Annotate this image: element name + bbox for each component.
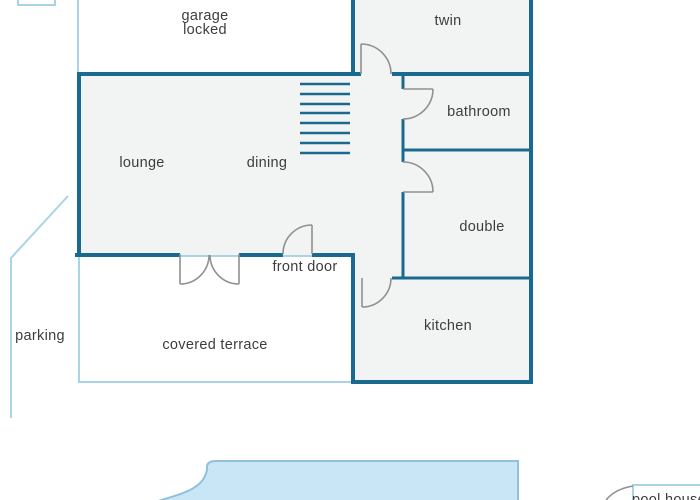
floor-plan-canvas: pool house — [0, 0, 700, 500]
pool — [158, 461, 518, 500]
label-kitchen: kitchen — [424, 318, 472, 334]
label-garage-line2: locked — [183, 22, 227, 38]
pool-house-door-arc — [606, 486, 633, 500]
label-bathroom: bathroom — [447, 104, 511, 120]
parking-outline — [11, 196, 68, 418]
driveway-marker — [18, 0, 55, 5]
label-double: double — [459, 219, 504, 235]
label-dining: dining — [247, 155, 288, 171]
floor-plan: pool house — [0, 0, 700, 500]
pool-house: pool house — [606, 485, 700, 500]
terrace-french-door-left — [180, 254, 209, 284]
label-covered-terrace: covered terrace — [162, 337, 267, 353]
label-pool-house: pool house — [632, 492, 700, 500]
label-front-door: front door — [272, 259, 337, 275]
label-lounge: lounge — [119, 155, 164, 171]
label-parking: parking — [15, 328, 65, 344]
label-twin: twin — [435, 13, 462, 29]
terrace-french-door-right — [210, 254, 239, 284]
